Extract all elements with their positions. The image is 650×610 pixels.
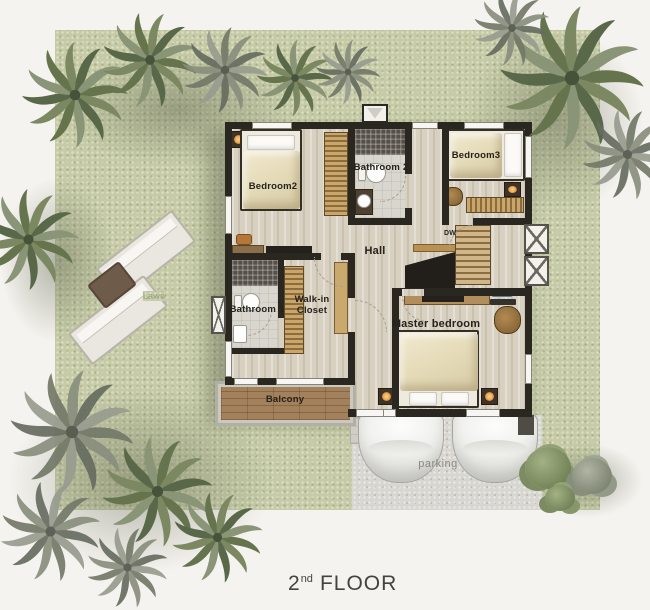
parking-label: parking xyxy=(418,458,458,470)
duvet xyxy=(243,151,300,209)
wall-segment xyxy=(348,253,355,298)
room-label-walkin-closet: Walk-in Closet xyxy=(295,294,330,316)
bay-window xyxy=(524,224,549,254)
bush xyxy=(545,485,575,511)
pillow xyxy=(247,135,295,150)
wall-segment xyxy=(348,129,355,225)
room-label-bathroom1: Bathroom 1 xyxy=(230,304,285,315)
window xyxy=(525,354,532,384)
walkin-line1: Walk-in xyxy=(295,294,330,305)
lawn-label: Lawn xyxy=(143,291,165,301)
wall-segment xyxy=(348,218,412,225)
wall-segment xyxy=(405,208,412,218)
room-label-bedroom2: Bedroom2 xyxy=(249,181,298,192)
wall-segment xyxy=(442,218,449,225)
wardrobe-rack xyxy=(324,132,348,216)
wall-segment xyxy=(232,348,284,354)
palm-tree xyxy=(309,33,388,112)
window xyxy=(234,378,258,385)
porch-column xyxy=(518,415,534,435)
gadget xyxy=(490,299,516,305)
wall-segment xyxy=(225,253,321,260)
floor-title: 2ndFLOOR xyxy=(288,572,397,596)
room-label-master-bedroom: Master bedroom xyxy=(392,318,480,330)
window xyxy=(225,196,232,234)
bush xyxy=(525,447,571,489)
desk xyxy=(466,197,524,213)
duvet xyxy=(400,333,478,391)
balcony-door xyxy=(276,378,324,385)
wall-segment xyxy=(392,296,399,409)
window xyxy=(225,341,232,377)
room-label-balcony: Balcony xyxy=(266,394,304,405)
bay-window xyxy=(524,256,549,286)
wall-segment xyxy=(348,332,355,385)
pillow xyxy=(409,392,437,406)
nightstand-lamp xyxy=(504,182,521,197)
chair xyxy=(494,306,521,334)
bathroom1-tile xyxy=(232,260,278,286)
room-label-bathroom2: Bathroom 2 xyxy=(354,162,409,173)
title-ordinal: nd xyxy=(301,573,313,585)
sink xyxy=(357,194,371,208)
room-label-dw: DW xyxy=(444,230,456,237)
title-number: 2 xyxy=(288,572,301,595)
walkin-line2: Closet xyxy=(295,305,330,316)
bush xyxy=(572,458,612,494)
bed xyxy=(397,330,479,408)
floor-plan-image: Lawn parking xyxy=(0,0,650,610)
nightstand-lamp xyxy=(481,388,498,405)
room-label-bedroom3: Bedroom3 xyxy=(452,150,501,161)
window xyxy=(466,409,500,417)
room-label-hall: Hall xyxy=(365,245,386,257)
window xyxy=(412,122,438,129)
title-word: FLOOR xyxy=(320,572,397,595)
sink xyxy=(233,325,247,343)
bathroom2-tile xyxy=(355,129,405,155)
wall-segment xyxy=(442,129,449,218)
pillow xyxy=(441,392,469,406)
basket xyxy=(236,234,252,245)
bed xyxy=(240,129,302,211)
bay-window xyxy=(211,296,226,334)
window xyxy=(356,409,384,417)
door-opening xyxy=(402,289,424,296)
